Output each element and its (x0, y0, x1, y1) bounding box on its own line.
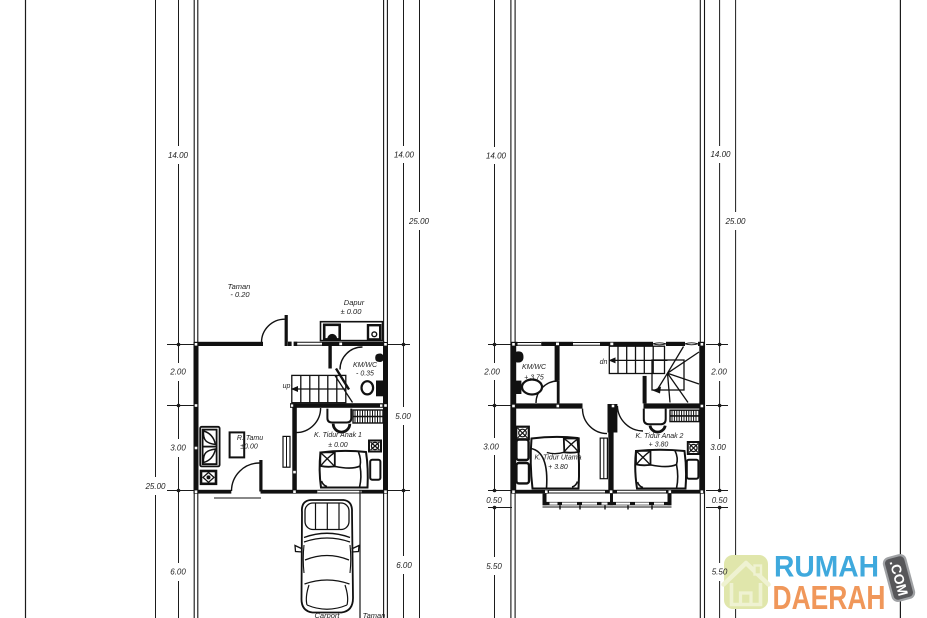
svg-text:6.00: 6.00 (170, 568, 186, 577)
svg-text:3.00: 3.00 (170, 444, 186, 453)
svg-text:Taman: Taman (363, 611, 386, 618)
svg-text:K. Tidur Anak 2: K. Tidur Anak 2 (636, 433, 684, 440)
svg-text:KM/WC: KM/WC (522, 364, 547, 371)
svg-text:25.00: 25.00 (408, 217, 430, 226)
svg-text:2.00: 2.00 (169, 368, 186, 377)
svg-text:14.00: 14.00 (394, 151, 415, 160)
svg-text:14.00: 14.00 (486, 152, 507, 161)
svg-text:K. Tidur Anak 1: K. Tidur Anak 1 (314, 432, 362, 439)
svg-text:up: up (283, 383, 291, 390)
svg-text:KM/WC: KM/WC (353, 362, 378, 369)
svg-text:± 0.00: ± 0.00 (341, 307, 363, 316)
svg-text:DAERAH: DAERAH (773, 579, 886, 616)
svg-text:25.00: 25.00 (144, 482, 166, 491)
svg-text:5.50: 5.50 (712, 568, 728, 577)
svg-text:5.50: 5.50 (486, 562, 502, 571)
svg-text:14.00: 14.00 (710, 150, 731, 159)
svg-text:0.50: 0.50 (486, 496, 502, 505)
svg-text:+ 3.80: + 3.80 (649, 442, 669, 449)
svg-text:dn: dn (600, 359, 608, 366)
svg-text:3.00: 3.00 (710, 443, 726, 452)
svg-text:2.00: 2.00 (483, 368, 500, 377)
svg-text:R. Tamu: R. Tamu (237, 435, 263, 442)
svg-text:±0.00: ±0.00 (240, 444, 258, 451)
svg-text:± 0.00: ± 0.00 (328, 442, 348, 449)
svg-text:+ 3.80: + 3.80 (548, 464, 568, 471)
svg-text:6.00: 6.00 (396, 561, 412, 570)
svg-text:14.00: 14.00 (168, 151, 189, 160)
svg-text:5.00: 5.00 (395, 412, 411, 421)
svg-text:0.50: 0.50 (712, 496, 728, 505)
svg-text:25.00: 25.00 (724, 217, 746, 226)
svg-text:Carport: Carport (314, 611, 340, 618)
svg-text:3.00: 3.00 (483, 443, 499, 452)
svg-text:2.00: 2.00 (710, 368, 727, 377)
svg-text:- 0.35: - 0.35 (356, 371, 374, 378)
svg-text:- 0.20: - 0.20 (230, 290, 250, 299)
svg-text:Dapur: Dapur (344, 298, 365, 307)
